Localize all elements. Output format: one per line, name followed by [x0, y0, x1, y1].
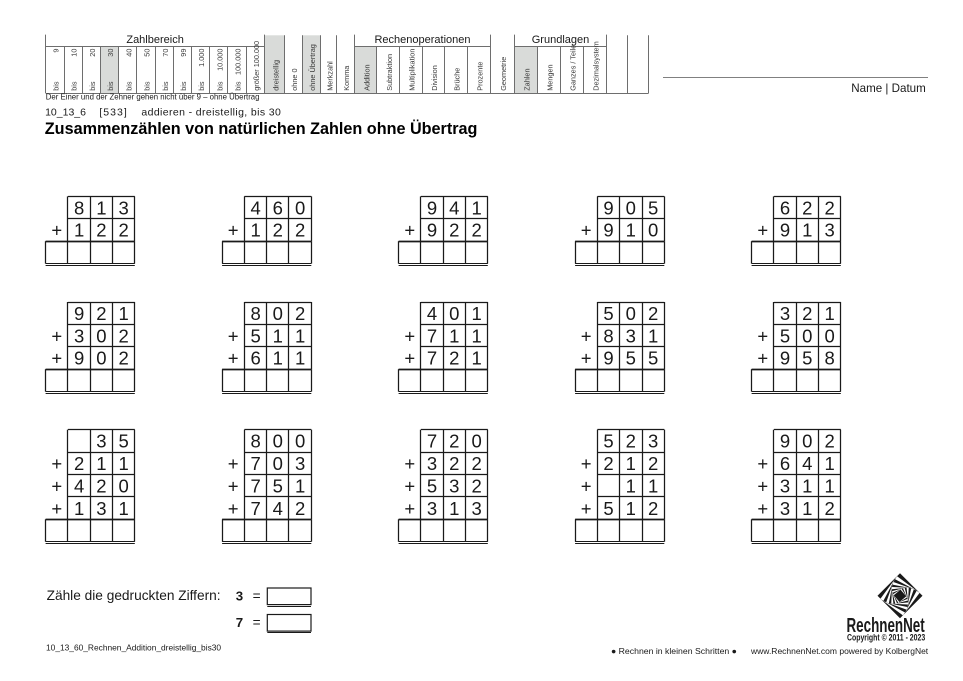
svg-text:+: +: [51, 220, 62, 241]
svg-text:+: +: [404, 348, 415, 369]
svg-text:4: 4: [273, 498, 283, 519]
svg-text:1: 1: [626, 475, 636, 496]
svg-text:+: +: [581, 220, 592, 241]
svg-text:5: 5: [119, 431, 129, 452]
svg-text:10.000: 10.000: [216, 49, 225, 71]
svg-text:40: 40: [124, 49, 133, 57]
svg-text:1: 1: [449, 325, 459, 346]
svg-text:5: 5: [648, 348, 658, 369]
svg-text:3: 3: [119, 197, 129, 218]
svg-text:9: 9: [427, 197, 437, 218]
svg-text:Name | Datum: Name | Datum: [851, 82, 926, 95]
svg-text:bis: bis: [234, 81, 243, 91]
svg-text:8: 8: [603, 325, 613, 346]
svg-text:+: +: [581, 498, 592, 519]
svg-text:99: 99: [179, 49, 188, 57]
svg-text:1: 1: [74, 220, 84, 241]
svg-text:1: 1: [119, 498, 129, 519]
svg-text:Division: Division: [430, 65, 439, 91]
svg-text:8: 8: [74, 197, 84, 218]
svg-text:Zahlen: Zahlen: [523, 68, 532, 90]
svg-text:2: 2: [119, 348, 129, 369]
svg-text:1: 1: [471, 348, 481, 369]
svg-text:1: 1: [119, 303, 129, 324]
svg-text:8: 8: [250, 431, 260, 452]
svg-text:+: +: [51, 453, 62, 474]
svg-text:+: +: [757, 348, 768, 369]
svg-text:2: 2: [471, 453, 481, 474]
svg-text:9: 9: [780, 220, 790, 241]
svg-text:bis: bis: [52, 81, 61, 91]
svg-text:Komma: Komma: [342, 65, 351, 91]
svg-text:Subtraktion: Subtraktion: [385, 54, 394, 91]
svg-text:+: +: [51, 498, 62, 519]
svg-text:Ganzes / Teile: Ganzes / Teile: [569, 45, 578, 91]
svg-text:1: 1: [471, 303, 481, 324]
svg-text:bis: bis: [70, 81, 79, 91]
svg-text:1: 1: [626, 453, 636, 474]
svg-text:+: +: [404, 325, 415, 346]
svg-text:7: 7: [427, 325, 437, 346]
svg-text:2: 2: [295, 303, 305, 324]
svg-text:+: +: [404, 475, 415, 496]
svg-text:+: +: [228, 453, 239, 474]
svg-text:9: 9: [780, 431, 790, 452]
svg-text:5: 5: [603, 431, 613, 452]
svg-text:2: 2: [273, 220, 283, 241]
svg-text:9: 9: [603, 220, 613, 241]
svg-text:0: 0: [802, 325, 812, 346]
svg-text:3: 3: [96, 498, 106, 519]
svg-text:bis: bis: [216, 81, 225, 91]
svg-text:9: 9: [780, 348, 790, 369]
svg-text:2: 2: [119, 220, 129, 241]
svg-text:=: =: [253, 589, 261, 604]
svg-text:+: +: [404, 498, 415, 519]
svg-text:1: 1: [648, 325, 658, 346]
svg-text:2: 2: [626, 431, 636, 452]
svg-text:bis: bis: [124, 81, 133, 91]
svg-text:4: 4: [449, 197, 459, 218]
svg-text:=: =: [253, 615, 261, 630]
svg-text:4: 4: [427, 303, 437, 324]
svg-text:www.RechnenNet.com powered by: www.RechnenNet.com powered by KolbergNet: [750, 646, 929, 656]
svg-text:3: 3: [449, 475, 459, 496]
svg-text:3: 3: [295, 453, 305, 474]
svg-text:0: 0: [96, 348, 106, 369]
svg-text:+: +: [228, 325, 239, 346]
svg-text:bis: bis: [197, 81, 206, 91]
svg-text:2: 2: [824, 197, 834, 218]
svg-text:7: 7: [427, 348, 437, 369]
svg-text:+: +: [228, 220, 239, 241]
svg-text:2: 2: [295, 220, 305, 241]
svg-text:Prozente: Prozente: [476, 62, 485, 91]
svg-text:4: 4: [250, 197, 260, 218]
svg-text:Brüche: Brüche: [453, 68, 462, 91]
svg-text:bis: bis: [106, 81, 115, 91]
svg-text:0: 0: [824, 325, 834, 346]
svg-text:+: +: [757, 220, 768, 241]
svg-text:Grundlagen: Grundlagen: [532, 34, 590, 46]
svg-text:5: 5: [250, 325, 260, 346]
svg-text:0: 0: [273, 453, 283, 474]
svg-text:2: 2: [74, 453, 84, 474]
svg-text:2: 2: [824, 498, 834, 519]
svg-text:2: 2: [119, 325, 129, 346]
svg-text:5: 5: [427, 475, 437, 496]
svg-text:1: 1: [648, 475, 658, 496]
svg-text:2: 2: [471, 475, 481, 496]
svg-text:9: 9: [52, 49, 61, 53]
svg-text:0: 0: [96, 325, 106, 346]
svg-text:+: +: [581, 475, 592, 496]
svg-text:2: 2: [824, 431, 834, 452]
svg-text:1: 1: [250, 220, 260, 241]
svg-text:6: 6: [273, 197, 283, 218]
svg-text:1: 1: [824, 475, 834, 496]
svg-text:+: +: [228, 475, 239, 496]
svg-text:● Rechnen in kleinen Schritten: ● Rechnen in kleinen Schritten ●: [611, 646, 737, 656]
svg-text:3: 3: [427, 498, 437, 519]
svg-text:Copyright © 2011 - 2023: Copyright © 2011 - 2023: [847, 633, 925, 643]
svg-text:+: +: [757, 453, 768, 474]
svg-text:ohne 0: ohne 0: [290, 68, 299, 90]
svg-text:2: 2: [802, 197, 812, 218]
svg-text:100.000: 100.000: [234, 49, 243, 75]
svg-text:bis: bis: [88, 81, 97, 91]
svg-text:8: 8: [824, 348, 834, 369]
svg-text:+: +: [228, 498, 239, 519]
svg-text:7: 7: [250, 475, 260, 496]
svg-text:2: 2: [96, 220, 106, 241]
svg-text:1: 1: [96, 197, 106, 218]
svg-text:2: 2: [449, 431, 459, 452]
svg-text:3: 3: [236, 589, 243, 604]
svg-text:0: 0: [471, 431, 481, 452]
svg-text:+: +: [581, 325, 592, 346]
svg-text:bis: bis: [161, 81, 170, 91]
svg-text:20: 20: [88, 49, 97, 57]
svg-text:2: 2: [471, 220, 481, 241]
svg-text:0: 0: [626, 197, 636, 218]
svg-text:1: 1: [96, 453, 106, 474]
svg-text:7: 7: [250, 453, 260, 474]
svg-text:+: +: [581, 348, 592, 369]
svg-text:+: +: [51, 348, 62, 369]
svg-text:Rechenoperationen: Rechenoperationen: [374, 34, 470, 46]
svg-text:Addition: Addition: [362, 64, 371, 90]
svg-text:+: +: [51, 475, 62, 496]
svg-text:1: 1: [802, 220, 812, 241]
svg-text:5: 5: [273, 475, 283, 496]
svg-text:10_13_60_Rechnen_Addition_drei: 10_13_60_Rechnen_Addition_dreistellig_bi…: [46, 643, 221, 653]
svg-text:2: 2: [603, 453, 613, 474]
svg-text:9: 9: [427, 220, 437, 241]
svg-text:8: 8: [250, 303, 260, 324]
svg-text:Geometrie: Geometrie: [499, 57, 508, 91]
svg-text:2: 2: [96, 303, 106, 324]
svg-text:1: 1: [273, 325, 283, 346]
svg-text:5: 5: [780, 325, 790, 346]
svg-text:2: 2: [96, 475, 106, 496]
svg-text:Zahlbereich: Zahlbereich: [126, 34, 183, 46]
svg-text:3: 3: [74, 325, 84, 346]
svg-text:2: 2: [449, 453, 459, 474]
svg-text:9: 9: [603, 197, 613, 218]
svg-text:6: 6: [780, 453, 790, 474]
svg-text:3: 3: [780, 498, 790, 519]
svg-text:1.000: 1.000: [197, 49, 206, 67]
svg-text:0: 0: [626, 303, 636, 324]
svg-text:5: 5: [626, 348, 636, 369]
svg-text:größer 100.000: größer 100.000: [252, 41, 261, 91]
svg-text:+: +: [228, 348, 239, 369]
svg-text:4: 4: [74, 475, 84, 496]
svg-text:1: 1: [471, 325, 481, 346]
svg-text:bis: bis: [143, 81, 152, 91]
svg-text:0: 0: [802, 431, 812, 452]
svg-text:+: +: [581, 453, 592, 474]
svg-text:10_13_6[533]addieren - dreiste: 10_13_6[533]addieren - dreistellig, bis …: [45, 106, 281, 118]
svg-text:3: 3: [648, 431, 658, 452]
svg-text:9: 9: [603, 348, 613, 369]
svg-text:0: 0: [648, 220, 658, 241]
svg-text:bis: bis: [179, 81, 188, 91]
svg-text:4: 4: [802, 453, 812, 474]
svg-text:0: 0: [273, 431, 283, 452]
svg-text:Mengen: Mengen: [546, 64, 555, 90]
svg-text:1: 1: [295, 348, 305, 369]
svg-text:Multiplikation: Multiplikation: [407, 49, 416, 91]
svg-text:9: 9: [74, 348, 84, 369]
svg-text:0: 0: [449, 303, 459, 324]
svg-text:7: 7: [236, 615, 243, 630]
svg-text:7: 7: [427, 431, 437, 452]
svg-text:3: 3: [780, 303, 790, 324]
svg-text:3: 3: [96, 431, 106, 452]
svg-text:Zähle die gedruckten Ziffern:: Zähle die gedruckten Ziffern:: [47, 588, 221, 603]
svg-text:1: 1: [273, 348, 283, 369]
svg-text:1: 1: [74, 498, 84, 519]
svg-text:6: 6: [250, 348, 260, 369]
svg-text:1: 1: [626, 498, 636, 519]
svg-text:Der Einer und der Zehner gehen: Der Einer und der Zehner gehen nicht übe…: [46, 93, 260, 102]
svg-text:5: 5: [603, 303, 613, 324]
svg-text:+: +: [404, 220, 415, 241]
svg-text:0: 0: [119, 475, 129, 496]
svg-text:1: 1: [471, 197, 481, 218]
svg-text:+: +: [51, 325, 62, 346]
svg-text:1: 1: [449, 498, 459, 519]
svg-text:Merkzahl: Merkzahl: [325, 61, 334, 91]
svg-text:Dezimalsystem: Dezimalsystem: [592, 41, 601, 90]
svg-text:3: 3: [471, 498, 481, 519]
svg-text:+: +: [757, 325, 768, 346]
svg-text:+: +: [757, 498, 768, 519]
svg-text:5: 5: [648, 197, 658, 218]
svg-text:3: 3: [626, 325, 636, 346]
svg-text:ohne Übertrag: ohne Übertrag: [308, 44, 317, 91]
svg-text:+: +: [404, 453, 415, 474]
svg-text:3: 3: [780, 475, 790, 496]
svg-text:7: 7: [250, 498, 260, 519]
svg-text:2: 2: [648, 453, 658, 474]
svg-text:1: 1: [626, 220, 636, 241]
svg-text:30: 30: [106, 49, 115, 57]
svg-text:3: 3: [824, 220, 834, 241]
svg-text:10: 10: [70, 49, 79, 57]
svg-text:0: 0: [295, 431, 305, 452]
svg-text:1: 1: [119, 453, 129, 474]
svg-text:6: 6: [780, 197, 790, 218]
svg-text:+: +: [757, 475, 768, 496]
svg-text:1: 1: [295, 475, 305, 496]
svg-text:1: 1: [824, 453, 834, 474]
svg-text:2: 2: [295, 498, 305, 519]
svg-text:0: 0: [273, 303, 283, 324]
svg-text:0: 0: [295, 197, 305, 218]
svg-text:1: 1: [295, 325, 305, 346]
svg-text:70: 70: [161, 49, 170, 57]
svg-text:5: 5: [802, 348, 812, 369]
svg-text:2: 2: [802, 303, 812, 324]
svg-text:3: 3: [427, 453, 437, 474]
svg-text:50: 50: [143, 49, 152, 57]
svg-text:1: 1: [802, 498, 812, 519]
svg-text:2: 2: [449, 348, 459, 369]
svg-text:2: 2: [648, 498, 658, 519]
svg-text:5: 5: [603, 498, 613, 519]
svg-text:1: 1: [824, 303, 834, 324]
svg-text:Zusammenzählen von natürlichen: Zusammenzählen von natürlichen Zahlen oh…: [45, 119, 478, 138]
svg-text:dreistellig: dreistellig: [271, 60, 280, 91]
svg-text:2: 2: [449, 220, 459, 241]
svg-text:1: 1: [802, 475, 812, 496]
svg-text:2: 2: [648, 303, 658, 324]
svg-text:9: 9: [74, 303, 84, 324]
